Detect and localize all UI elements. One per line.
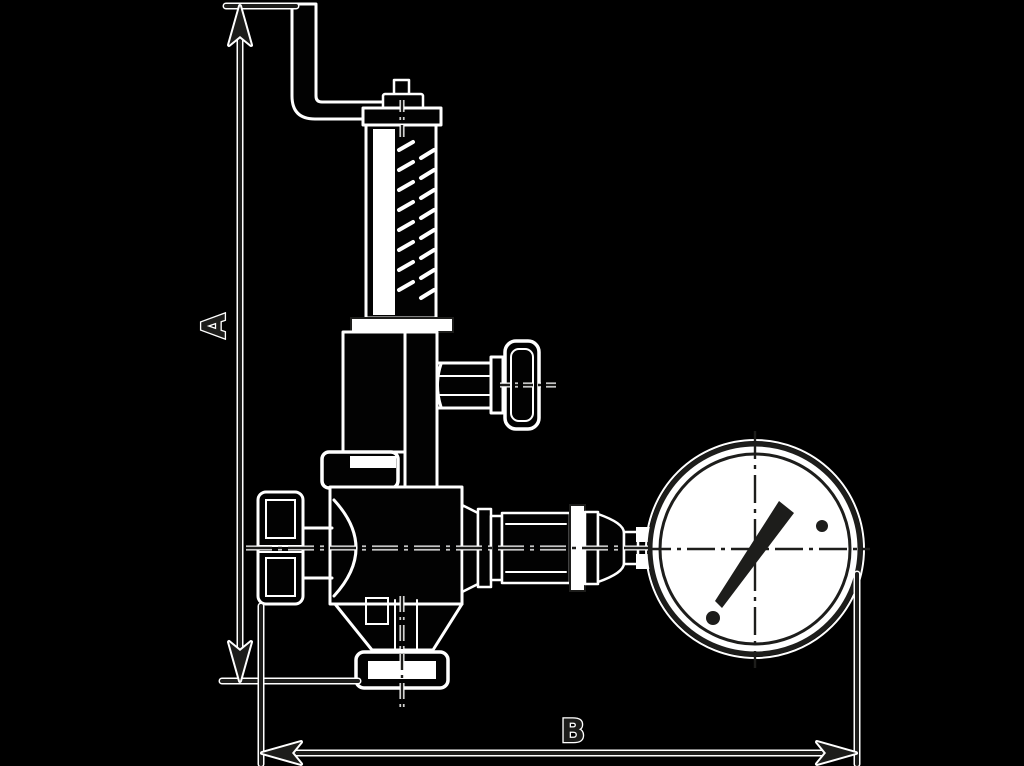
valve-body — [258, 487, 462, 688]
outlet-pipe — [437, 363, 491, 408]
gauge-needle-tail-dot — [706, 611, 720, 625]
dimension-label-a: A — [195, 313, 233, 338]
body-taper — [335, 604, 462, 650]
union-nut-face — [350, 456, 396, 468]
valve-stem-column — [405, 332, 437, 487]
spindle-strip — [373, 129, 395, 315]
dimension-label-b: B — [561, 712, 585, 750]
bonnet-base-band — [351, 318, 453, 332]
gauge-dial-dot — [816, 520, 828, 532]
pressure-gauge — [643, 431, 870, 668]
technical-drawing: A B — [0, 0, 1024, 766]
drawing-canvas: A B — [0, 0, 1024, 766]
bonnet-spring-housing — [322, 80, 453, 488]
lever-arm — [292, 4, 386, 119]
inlet-neck — [302, 528, 332, 578]
test-lever — [292, 4, 386, 119]
bonnet-lower-housing — [343, 332, 405, 452]
